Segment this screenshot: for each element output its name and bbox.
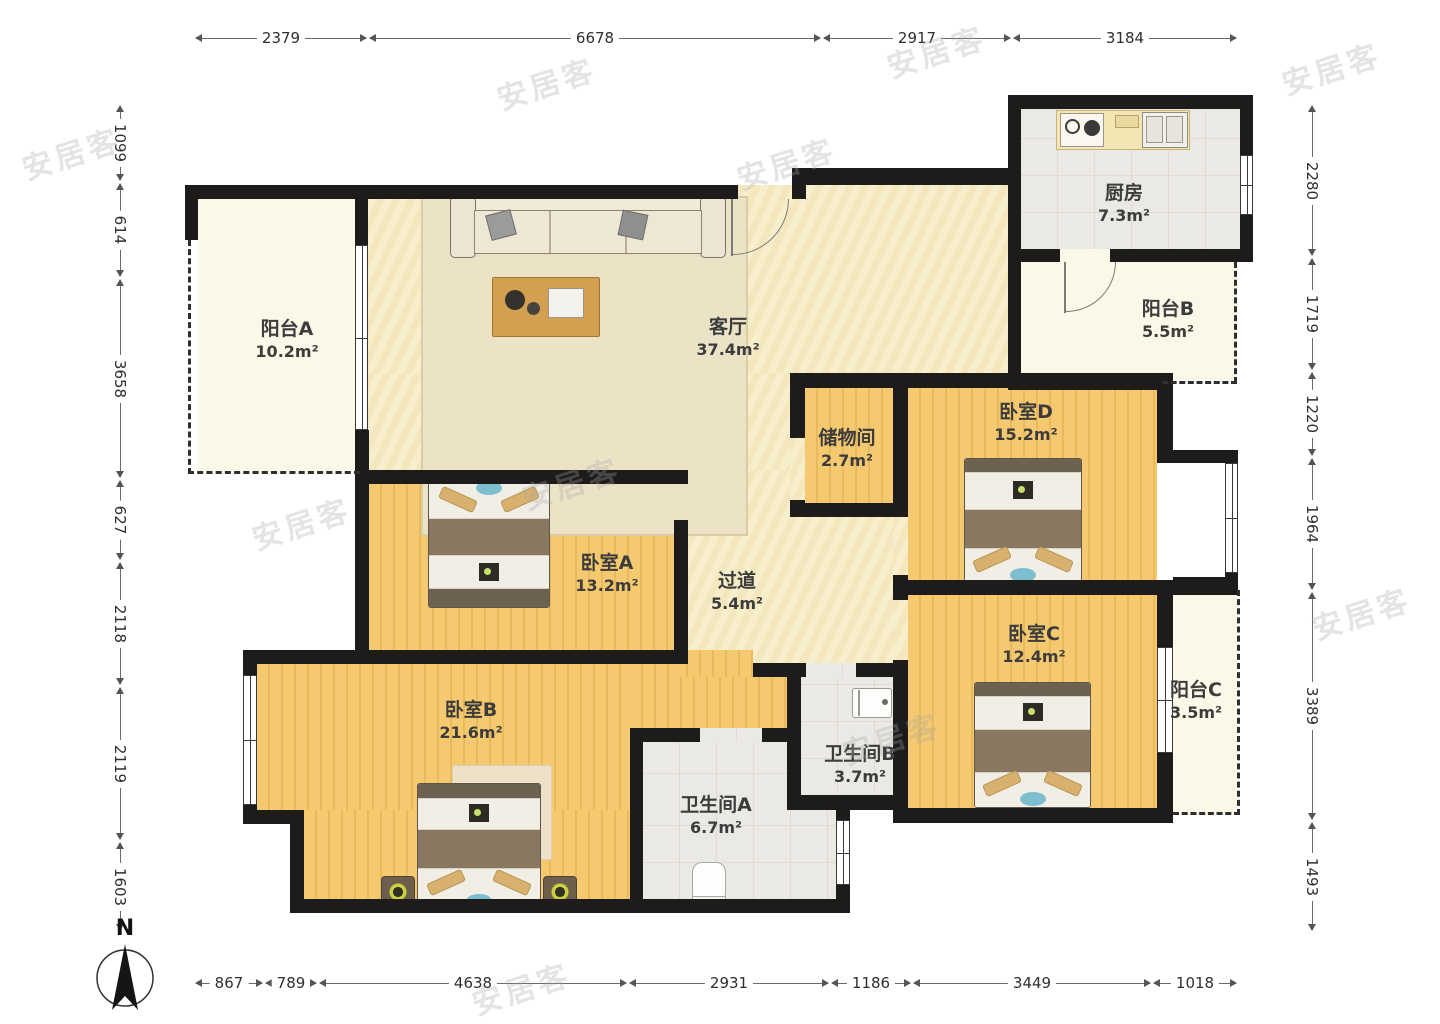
dim-bottom-segment: 2931 (630, 983, 828, 984)
label-bedroom-a: 卧室A13.2m² (575, 552, 638, 596)
compass-label: N (110, 916, 140, 941)
dim-left-segment: 2119 (120, 688, 121, 839)
window-bedroom-d (1225, 463, 1238, 573)
balcony-c-dashed-bottom (1173, 812, 1240, 815)
washing-machine-door (858, 690, 860, 716)
label-bedroom-b: 卧室B21.6m² (439, 699, 502, 743)
bed-c (974, 682, 1091, 808)
bed-b (417, 783, 541, 911)
label-bedroom-c: 卧室C12.4m² (1002, 623, 1065, 667)
label-living: 客厅37.4m² (696, 316, 759, 360)
dim-bottom-segment: 1018 (1154, 983, 1236, 984)
dim-top-segment: 6678 (370, 38, 820, 39)
dim-right-segment: 1964 (1312, 459, 1313, 589)
dim-left-segment: 627 (120, 481, 121, 559)
window-bath-a (836, 820, 850, 885)
entry-door-leaf (731, 199, 733, 256)
compass-icon (93, 940, 157, 1016)
sofa-pillow (618, 210, 649, 241)
dim-left-segment: 3658 (120, 280, 121, 477)
dim-bottom-segment: 4638 (320, 983, 626, 984)
watermark: 安居客 (16, 115, 127, 188)
stove-burner (1065, 119, 1080, 134)
watermark: 安居客 (1276, 30, 1387, 103)
floorplan: 阳台A10.2m² 客厅37.4m² 厨房7.3m² 阳台B5.5m² 储物间2… (0, 0, 1440, 1024)
balcony-b-dashed-bottom (1162, 381, 1237, 384)
label-balcony-b: 阳台B5.5m² (1142, 298, 1194, 342)
balcony-b-dashed-right (1234, 262, 1237, 383)
dim-bottom-segment: 789 (266, 983, 316, 984)
toilet (692, 862, 726, 898)
watermark: 安居客 (246, 485, 357, 558)
stove-burner (1084, 120, 1100, 136)
label-hallway: 过道5.4m² (711, 570, 763, 614)
dim-left-segment: 614 (120, 184, 121, 276)
dim-right-segment: 1493 (1312, 823, 1313, 930)
balcony-c-dashed-right (1237, 590, 1240, 815)
kitchen-appliance (1115, 115, 1139, 128)
label-balcony-a: 阳台A10.2m² (255, 318, 318, 362)
watermark: 安居客 (491, 45, 602, 118)
floor-patch (790, 438, 805, 500)
balcony-a-dashed-bottom (188, 471, 360, 474)
bed-d (964, 458, 1082, 584)
teacup (527, 302, 540, 315)
sink-basin (1146, 116, 1163, 143)
dim-top-segment: 2379 (196, 38, 366, 39)
kitchen-balcony-door-leaf (1064, 262, 1066, 313)
window-balcony-a (355, 245, 368, 430)
dim-bottom-segment: 1186 (832, 983, 910, 984)
dim-right-segment: 1719 (1312, 259, 1313, 369)
label-kitchen: 厨房7.3m² (1098, 182, 1150, 226)
window-kitchen (1240, 155, 1253, 215)
floor-patch (893, 517, 908, 575)
floor-patch (893, 600, 908, 660)
floor-patch (1060, 249, 1110, 262)
floor-patch (700, 728, 762, 742)
floor-patch (806, 663, 856, 677)
dim-bottom-segment: 3449 (914, 983, 1150, 984)
sofa-arm-right (700, 196, 726, 258)
balcony-a-dashed-left (188, 240, 191, 474)
bed-a (428, 478, 550, 608)
watermark: 安居客 (881, 13, 992, 86)
dim-right-segment: 1220 (1312, 373, 1313, 455)
dim-right-segment: 3389 (1312, 593, 1313, 819)
dim-bottom-segment: 867 (196, 983, 262, 984)
label-bedroom-d: 卧室D15.2m² (994, 401, 1057, 445)
tray (548, 288, 584, 318)
dim-top-segment: 2917 (824, 38, 1010, 39)
window-bedroom-b (243, 675, 257, 805)
dim-right-segment: 2280 (1312, 106, 1313, 255)
dim-top-segment: 3184 (1014, 38, 1236, 39)
watermark: 安居客 (1306, 575, 1417, 648)
dim-left-segment: 2118 (120, 563, 121, 684)
label-storage: 储物间2.7m² (818, 427, 875, 471)
kettle (505, 290, 525, 310)
floor-balcony-b (1021, 262, 1237, 380)
washing-machine-knob (882, 699, 888, 705)
dim-left-segment: 1099 (120, 106, 121, 180)
label-bath-a: 卫生间A6.7m² (680, 794, 752, 838)
sink-basin (1166, 116, 1183, 143)
sofa-arm-left (450, 196, 476, 258)
label-balcony-c: 阳台C3.5m² (1170, 679, 1222, 723)
label-bath-b: 卫生间B3.7m² (824, 743, 895, 787)
